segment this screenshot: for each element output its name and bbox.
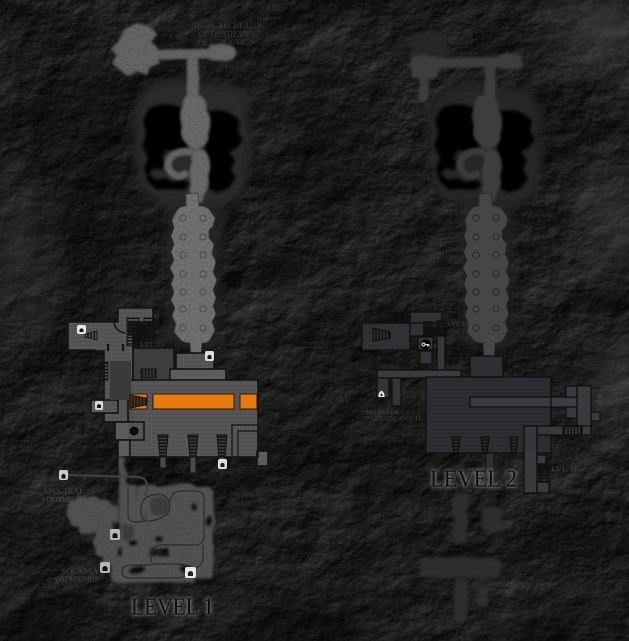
svg-text:FOOTHILLS: FOOTHILLS (42, 495, 85, 504)
svg-text:PASSAGE-LVL 1E: PASSAGE-LVL 1E (366, 416, 424, 423)
svg-text:LVL 1b: LVL 1b (140, 341, 166, 349)
svg-text:LEVEL 1: LEVEL 1 (131, 595, 214, 621)
svg-text:LEVEL 2: LEVEL 2 (430, 467, 517, 493)
svg-text:DESTRUCTION: DESTRUCTION (198, 37, 256, 47)
svg-text:CATACOMBS: CATACOMBS (55, 575, 99, 584)
svg-text:LVL 1C: LVL 1C (68, 406, 91, 414)
svg-text:LVL 1F: LVL 1F (551, 466, 579, 474)
svg-text:LVL 1E: LVL 1E (244, 491, 261, 497)
svg-text:LVL 1h: LVL 1h (447, 321, 470, 328)
